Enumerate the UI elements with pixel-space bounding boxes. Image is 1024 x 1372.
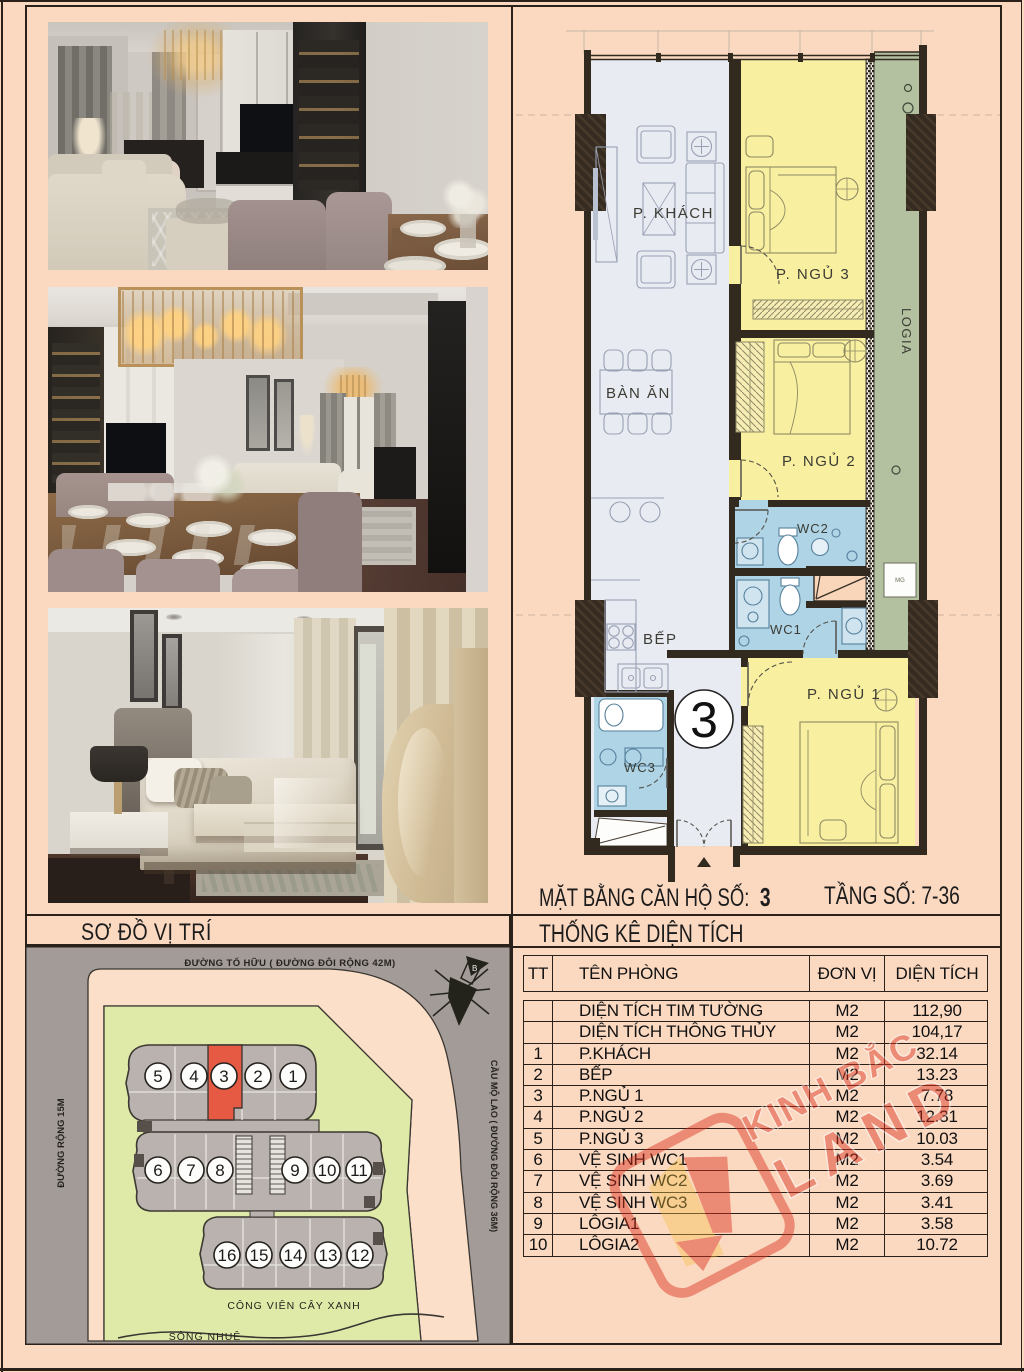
svg-text:P. NGỦ 1: P. NGỦ 1	[807, 685, 881, 703]
svg-text:10: 10	[318, 1161, 337, 1180]
svg-text:12: 12	[351, 1246, 370, 1265]
svg-text:3: 3	[690, 692, 718, 748]
svg-text:B: B	[472, 964, 477, 973]
svg-text:CÔNG VIÊN CÂY XANH: CÔNG VIÊN CÂY XANH	[227, 1299, 360, 1312]
svg-text:9: 9	[290, 1161, 299, 1180]
svg-text:CẦU MỘ LAO ( ĐƯỜNG ĐÔI RỘNG 36: CẦU MỘ LAO ( ĐƯỜNG ĐÔI RỘNG 36M)	[489, 1060, 500, 1232]
svg-text:8: 8	[215, 1161, 224, 1180]
svg-text:6: 6	[153, 1161, 162, 1180]
svg-text:LOGIA: LOGIA	[899, 308, 914, 355]
svg-text:SÔNG NHUỆ: SÔNG NHUỆ	[169, 1330, 242, 1343]
svg-text:WC1: WC1	[770, 622, 802, 637]
svg-text:16: 16	[218, 1246, 237, 1265]
svg-text:BẾP: BẾP	[643, 631, 678, 648]
svg-text:MG: MG	[895, 578, 905, 584]
svg-text:P. KHÁCH: P. KHÁCH	[633, 205, 714, 222]
svg-text:7: 7	[186, 1161, 195, 1180]
svg-text:5: 5	[153, 1067, 162, 1086]
svg-text:4: 4	[189, 1067, 198, 1086]
svg-text:WC2: WC2	[797, 521, 829, 536]
svg-text:15: 15	[250, 1246, 269, 1265]
svg-text:ĐƯỜNG TỐ HỮU ( ĐƯỜNG ĐÔI RỘNG: ĐƯỜNG TỐ HỮU ( ĐƯỜNG ĐÔI RỘNG 42M)	[184, 957, 395, 969]
svg-text:WC3: WC3	[624, 760, 656, 775]
svg-text:2: 2	[253, 1067, 262, 1086]
svg-text:ĐƯỜNG RỘNG 15M: ĐƯỜNG RỘNG 15M	[55, 1098, 67, 1187]
svg-text:13: 13	[319, 1246, 338, 1265]
svg-text:11: 11	[350, 1161, 368, 1180]
svg-text:14: 14	[284, 1246, 303, 1265]
svg-text:BÀN ĂN: BÀN ĂN	[606, 385, 671, 402]
svg-text:P. NGỦ 2: P. NGỦ 2	[782, 452, 856, 470]
svg-text:3: 3	[219, 1067, 228, 1086]
svg-text:P. NGỦ 3: P. NGỦ 3	[776, 265, 850, 283]
svg-text:1: 1	[288, 1067, 297, 1086]
